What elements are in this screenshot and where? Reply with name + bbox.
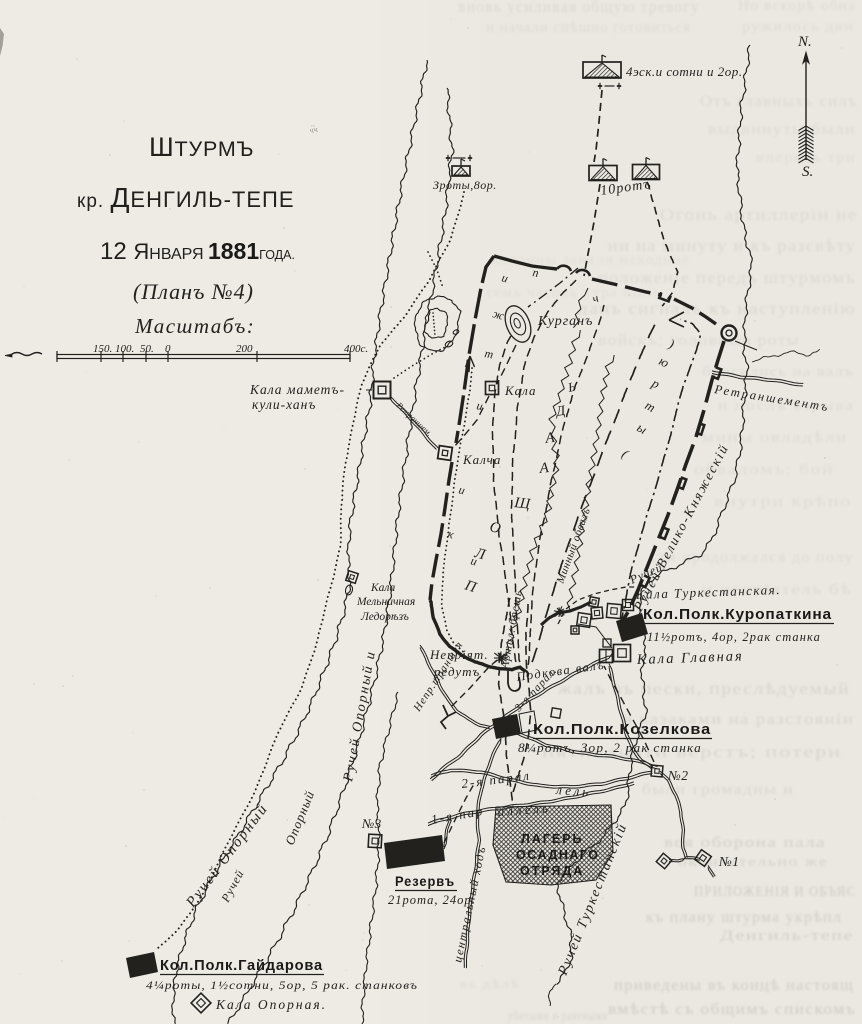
svg-text:ПРИЛОЖЕНІЯ И ОБЪЯС: ПРИЛОЖЕНІЯ И ОБЪЯС <box>694 884 856 900</box>
svg-text:вмѣстѣ съ общимъ спискомъ: вмѣстѣ съ общимъ спискомъ <box>608 1001 856 1018</box>
svg-text:11½ротъ, 4ор, 2рак станка: 11½ротъ, 4ор, 2рак станка <box>647 629 821 644</box>
svg-text:выдвинуты были: выдвинуты были <box>708 121 856 138</box>
svg-text:бросились на валъ: бросились на валъ <box>702 364 854 380</box>
svg-text:и начали спѣшно готовиться: и начали спѣшно готовиться <box>486 19 691 36</box>
svg-text:ОТРЯДА: ОТРЯДА <box>520 864 584 878</box>
svg-text:№3: №3 <box>361 816 382 831</box>
svg-text:21рота, 24ор.: 21рота, 24ор. <box>388 893 476 907</box>
svg-text:N.: N. <box>797 34 812 50</box>
svg-text:Кала маметъ-: Кала маметъ- <box>249 382 345 397</box>
svg-text:Кала Опорная.: Кала Опорная. <box>215 997 327 1012</box>
svg-text:войскъ; головныя роты: войскъ; головныя роты <box>598 332 800 349</box>
svg-text:вся оборона пала: вся оборона пала <box>664 835 826 851</box>
svg-text:вновь усиливая общую тревогу: вновь усиливая общую тревогу <box>458 0 700 16</box>
svg-text:данъ сигналъ къ наступленію: данъ сигналъ къ наступленію <box>578 299 856 318</box>
svg-text:Мельничная: Мельничная <box>356 596 415 608</box>
svg-text:S.: S. <box>802 164 813 180</box>
svg-text:(Планъ №4): (Планъ №4) <box>133 279 254 304</box>
svg-text:Кол.Полк.Куропаткина: Кол.Полк.Куропаткина <box>643 606 832 623</box>
svg-text:кр. ДЕНГИЛЬ-ТЕПЕ: кр. ДЕНГИЛЬ-ТЕПЕ <box>77 182 295 213</box>
svg-text:сти продолжался до полу: сти продолжался до полу <box>650 549 854 566</box>
svg-text:Зроты,8ор.: Зроты,8ор. <box>433 178 497 192</box>
svg-text:въ дѣлѣ: въ дѣлѣ <box>460 976 520 991</box>
svg-text:кули-ханъ: кули-ханъ <box>252 397 316 412</box>
svg-text:№2: №2 <box>667 768 688 783</box>
svg-text:Масштабъ:: Масштабъ: <box>134 314 255 338</box>
svg-text:убитыми и ранеными: убитыми и ранеными <box>508 1009 608 1024</box>
svg-text:200: 200 <box>236 343 253 355</box>
svg-text:ч́ч: ч́ч <box>309 124 319 135</box>
svg-text:къ плану штурма укрѣпл: къ плану штурма укрѣпл <box>646 909 842 926</box>
svg-text:приведены въ концѣ настоящ: приведены въ концѣ настоящ <box>614 977 854 994</box>
svg-text:были громадны и: были громадны и <box>642 782 794 798</box>
svg-text:8¼ротъ, Зор, 2 рак станка: 8¼ротъ, Зор, 2 рак станка <box>518 740 702 755</box>
svg-text:Огонь артиллеріи не: Огонь артиллеріи не <box>660 205 858 224</box>
svg-text:4эск.и сотни и 2ор.: 4эск.и сотни и 2ор. <box>626 64 742 79</box>
svg-text:Кала: Кала <box>370 582 396 594</box>
svg-text:ЛАГЕРЬ: ЛАГЕРЬ <box>521 832 584 846</box>
svg-text:Непріят.: Непріят. <box>429 647 489 662</box>
svg-text:ружилось дви: ружилось дви <box>742 19 854 35</box>
svg-text:100.: 100. <box>115 343 134 355</box>
svg-text:Денгиль-тепе: Денгиль-тепе <box>720 928 854 944</box>
svg-text:ОСАДНАГО: ОСАДНАГО <box>516 848 600 862</box>
svg-text:редутъ: редутъ <box>433 664 480 679</box>
svg-text:Кол.Полк.Гайдарова: Кол.Полк.Гайдарова <box>160 958 323 974</box>
svg-text:Но вскорѣ обна: Но вскорѣ обна <box>738 0 856 14</box>
svg-text:жалъ въ пески, преслѣдуемый: жалъ въ пески, преслѣдуемый <box>557 679 850 698</box>
svg-text:Ледорѣзъ: Ледорѣзъ <box>360 611 409 623</box>
svg-text:внутри крѣпо: внутри крѣпо <box>714 494 852 510</box>
svg-text:Кол.Полк.Козелкова: Кол.Полк.Козелкова <box>533 721 711 738</box>
svg-text:№1: №1 <box>718 854 739 869</box>
svg-text:50.: 50. <box>140 343 154 355</box>
svg-text:Резервъ: Резервъ <box>395 873 455 889</box>
svg-text:лель: лель <box>555 782 592 799</box>
svg-text:Щ: Щ <box>513 495 533 513</box>
svg-text:0: 0 <box>165 343 171 355</box>
svg-text:4¼роты, 1½сотни, 5ор, 5 рак. с: 4¼роты, 1½сотни, 5ор, 5 рак. станковъ <box>146 978 418 992</box>
svg-text:150.: 150. <box>93 343 112 355</box>
svg-text:400с.: 400с. <box>344 343 368 355</box>
svg-text:Калча: Калча <box>462 452 501 467</box>
svg-text:Отъ главныхъ силъ: Отъ главныхъ силъ <box>700 93 858 110</box>
svg-text:мины овладѣли: мины овладѣли <box>702 430 848 446</box>
svg-text:колонны заняли исходное: колонны заняли исходное <box>492 252 690 268</box>
svg-text:ШТУРМЪ: ШТУРМЪ <box>149 132 254 162</box>
